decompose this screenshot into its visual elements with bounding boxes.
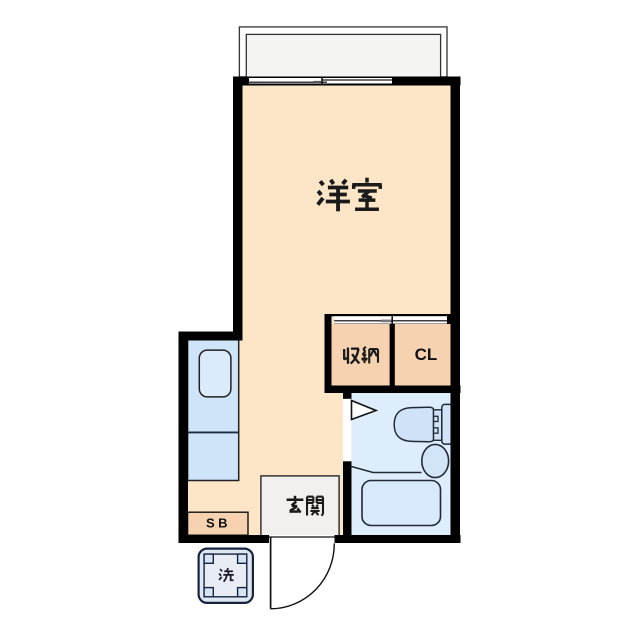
svg-text:CL: CL — [415, 345, 438, 364]
svg-text:SB: SB — [206, 516, 231, 531]
